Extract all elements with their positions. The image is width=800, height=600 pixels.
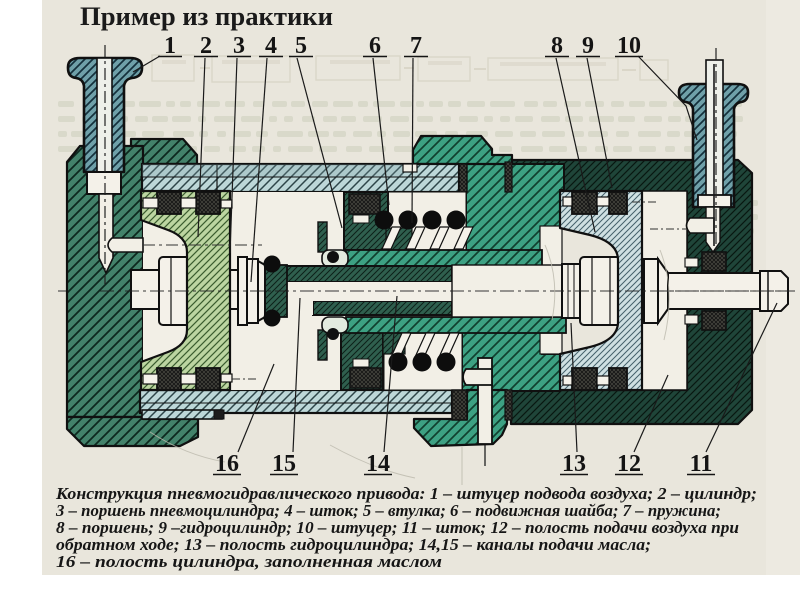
svg-text:8: 8 [551, 33, 563, 59]
svg-text:1: 1 [164, 33, 176, 59]
svg-text:16 – полость цилиндра, заполне: 16 – полость цилиндра, заполненная масло… [56, 552, 442, 571]
svg-text:3: 3 [233, 33, 245, 59]
svg-text:4: 4 [265, 33, 277, 59]
svg-text:16: 16 [215, 451, 239, 477]
svg-text:13: 13 [562, 451, 586, 477]
svg-text:9: 9 [582, 33, 594, 59]
svg-text:Пример из практики: Пример из практики [80, 1, 333, 31]
svg-text:7: 7 [410, 33, 422, 59]
svg-text:6: 6 [369, 33, 381, 59]
svg-text:15: 15 [272, 451, 296, 477]
svg-text:12: 12 [617, 451, 641, 477]
svg-text:14: 14 [366, 451, 390, 477]
svg-text:2: 2 [200, 33, 212, 59]
svg-text:10: 10 [617, 33, 641, 59]
svg-text:5: 5 [295, 33, 307, 59]
svg-text:11: 11 [690, 451, 713, 477]
